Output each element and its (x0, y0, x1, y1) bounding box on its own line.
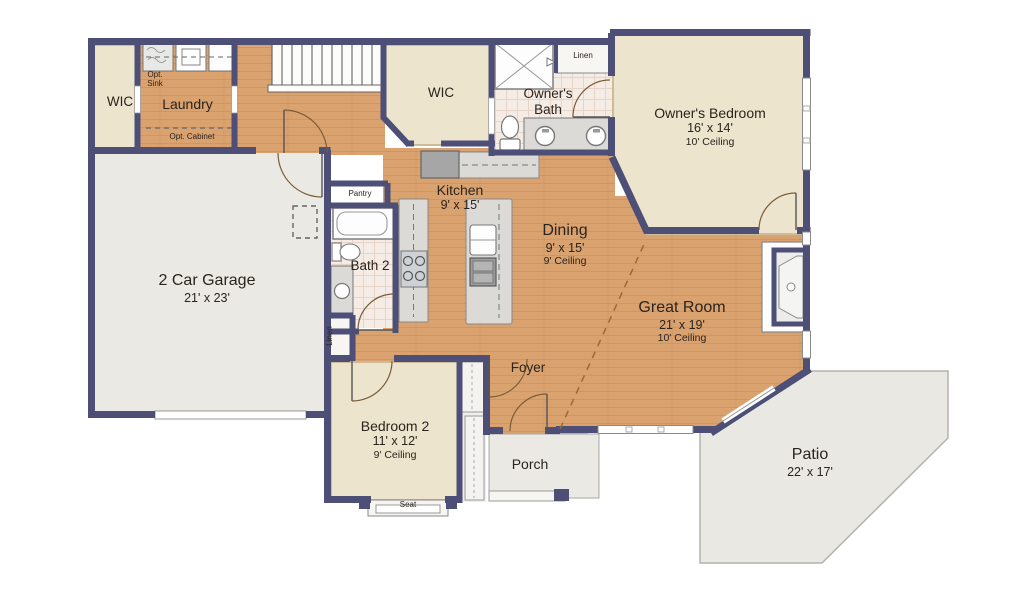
room-dims: 22' x 17' (745, 465, 875, 480)
room-dims: 21' x 23' (117, 291, 297, 306)
room-label-owners-bath: Owner's Bath (509, 86, 587, 117)
label-opt-sink: Opt. Sink (141, 70, 169, 89)
room-dims: 9' x 15' (515, 241, 615, 256)
fireplace (762, 242, 809, 332)
room-label-laundry: Laundry (140, 96, 235, 112)
room-name: Great Room (612, 299, 752, 318)
label-linen-hall: Linen (325, 313, 337, 359)
room-label-wic-left: WIC (95, 94, 145, 110)
room-name: Owner's Bedroom (630, 105, 790, 121)
room-name: Bath 2 (347, 258, 393, 274)
room-ceiling: 9' Ceiling (325, 449, 465, 461)
room-name: Bedroom 2 (325, 418, 465, 434)
room-name: 2 Car Garage (117, 272, 297, 291)
room-label-dining: Dining 9' x 15' 9' Ceiling (515, 222, 615, 267)
room-name: WIC (95, 94, 145, 110)
room-dims: 9' x 15' (410, 198, 510, 213)
room-name: Kitchen (410, 182, 510, 198)
room-dims: 11' x 12' (325, 434, 465, 449)
label-seat: Seat (378, 500, 438, 509)
room-label-patio: Patio 22' x 17' (745, 446, 875, 479)
room-label-bath2: Bath 2 (347, 258, 393, 274)
room-label-pantry: Pantry (333, 189, 387, 198)
room-name: Patio (745, 446, 875, 465)
room-name: Foyer (498, 360, 558, 376)
room-dims: 21' x 19' (612, 318, 752, 333)
room-label-bedroom2: Bedroom 2 11' x 12' 9' Ceiling (325, 418, 465, 461)
label-opt-cabinet: Opt. Cabinet (146, 132, 238, 141)
room-label-foyer: Foyer (498, 360, 558, 376)
room-label-kitchen: Kitchen 9' x 15' (410, 182, 510, 213)
room-dims: 16' x 14' (630, 121, 790, 136)
room-ceiling: 10' Ceiling (630, 136, 790, 148)
room-name: Dining (515, 222, 615, 241)
room-name: WIC (401, 85, 481, 101)
stairs (268, 44, 386, 92)
room-name: Laundry (140, 96, 235, 112)
room-ceiling: 9' Ceiling (515, 255, 615, 267)
label-linen-top: Linen (558, 51, 608, 60)
room-label-garage: 2 Car Garage 21' x 23' (117, 272, 297, 305)
room-label-porch: Porch (480, 456, 580, 472)
room-name: Porch (480, 456, 580, 472)
room-label-great-room: Great Room 21' x 19' 10' Ceiling (612, 299, 752, 344)
room-ceiling: 10' Ceiling (612, 332, 752, 344)
room-label-wic-center: WIC (401, 85, 481, 101)
floor-plan: WIC Laundry Opt. Sink Opt. Cabinet WIC O… (0, 0, 1024, 600)
room-name: Owner's Bath (509, 86, 587, 117)
room-label-owners-bedroom: Owner's Bedroom 16' x 14' 10' Ceiling (630, 105, 790, 148)
